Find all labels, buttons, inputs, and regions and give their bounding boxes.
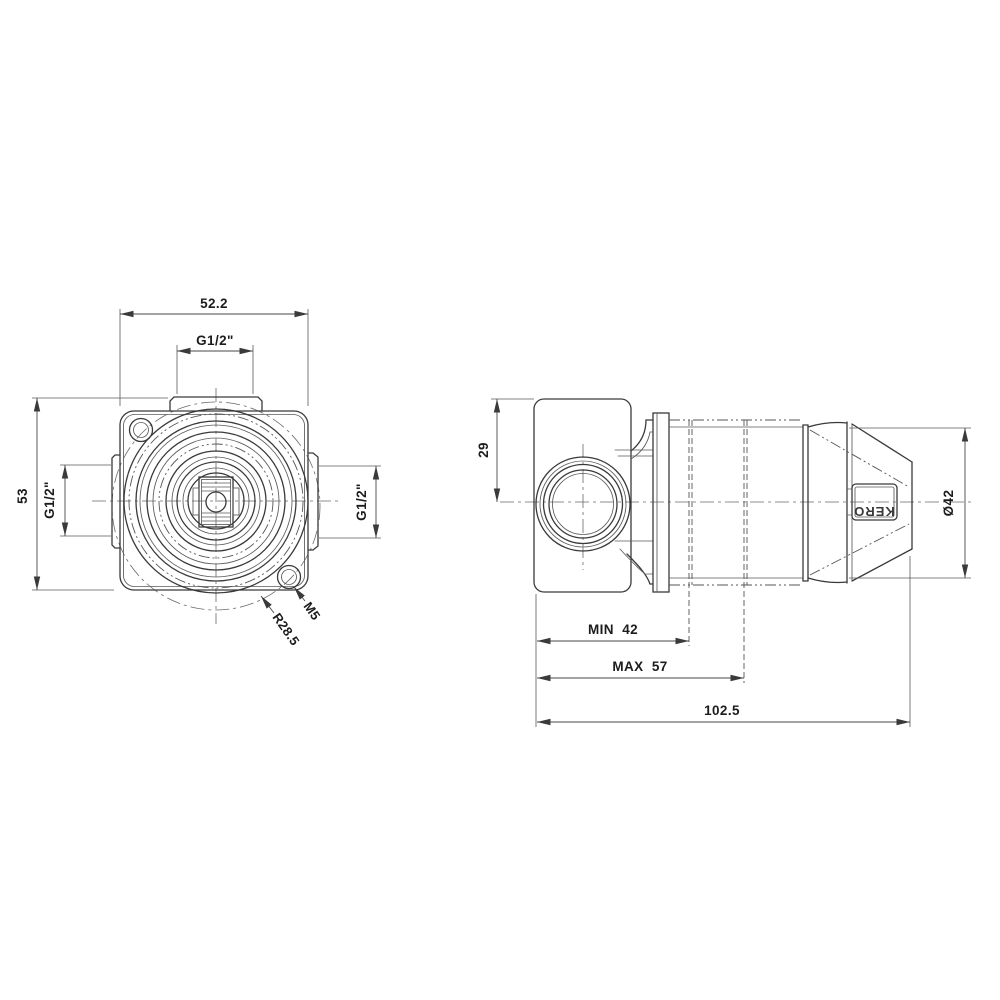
front-view: 52.2 G1/2" 53 G1/2" G1/2" — [15, 296, 381, 648]
dim-label-overall-length: 102.5 — [704, 703, 740, 718]
handle-phantom-max-top — [810, 430, 909, 487]
dim-label-left-port: G1/2" — [42, 481, 57, 519]
flange-inner-outline — [124, 415, 305, 587]
dim-label-min: MIN 42 — [588, 622, 638, 637]
mounting-hole-bottom-right — [278, 566, 301, 589]
dim-right-port: G1/2" — [319, 466, 381, 538]
dim-label-29: 29 — [476, 442, 491, 458]
dim-label-right-port: G1/2" — [354, 483, 369, 521]
dim-label-width: 52.2 — [200, 296, 228, 311]
dim-max-57: MAX 57 — [537, 659, 744, 678]
escutcheon-plate — [803, 425, 808, 581]
left-port — [112, 455, 120, 548]
dim-depth-29: 29 — [476, 399, 534, 502]
dim-left-port: G1/2" — [42, 465, 111, 536]
stem-tab-right — [233, 488, 239, 515]
dim-label-max: MAX 57 — [612, 659, 667, 674]
technical-drawing-canvas: 52.2 G1/2" 53 G1/2" G1/2" — [0, 0, 1000, 1000]
handle: KERO — [808, 422, 912, 583]
handle-phantom-max-bottom — [810, 524, 909, 575]
mounting-hole-bottom-right-inner — [282, 570, 297, 585]
wall-flange — [653, 413, 669, 592]
leader-r28-5: R28.5 — [261, 596, 303, 648]
leader-m5: M5 — [294, 587, 324, 623]
dim-label-diameter: Ø42 — [941, 490, 956, 517]
mounting-hole-top-left-inner — [134, 423, 149, 438]
technical-drawing-page: 52.2 G1/2" 53 G1/2" G1/2" — [0, 0, 1000, 1000]
dim-diameter-42: Ø42 — [849, 428, 971, 578]
side-view: KERO 29 Ø42 MIN 42 MAX 57 — [476, 399, 972, 727]
handle-brand-text: KERO — [853, 504, 895, 519]
dim-height-53: 53 — [15, 398, 168, 590]
dim-label-top-port: G1/2" — [196, 333, 234, 348]
dim-top-port: G1/2" — [177, 333, 253, 394]
stem-tab-left — [193, 488, 199, 515]
leader-label-m5: M5 — [301, 599, 324, 623]
leader-label-r28-5: R28.5 — [270, 610, 303, 648]
cartridge-housing — [669, 420, 803, 683]
dim-overall-102-5: 102.5 — [537, 556, 910, 727]
dim-label-height: 53 — [15, 488, 30, 504]
